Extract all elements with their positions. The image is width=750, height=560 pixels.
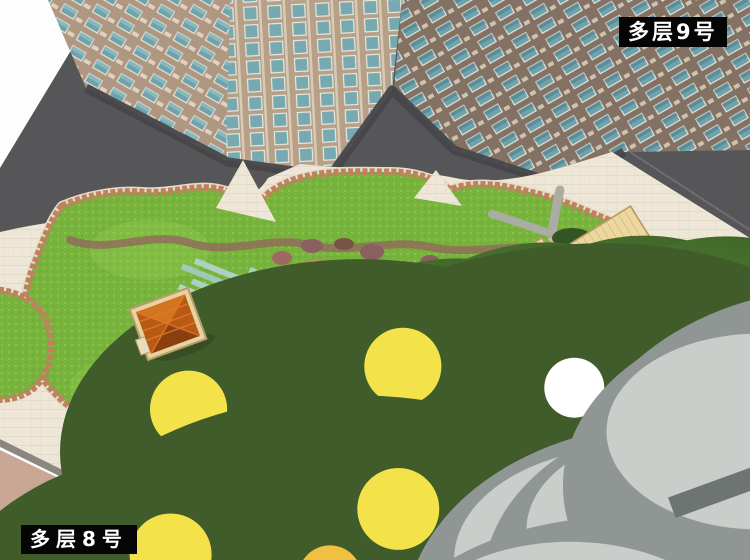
rendering-canvas: 多层9号 多层8号 — [0, 0, 750, 560]
courtyard-rendering — [0, 0, 750, 560]
building-label-8: 多层8号 — [21, 525, 137, 554]
building-label-9: 多层9号 — [619, 17, 727, 47]
